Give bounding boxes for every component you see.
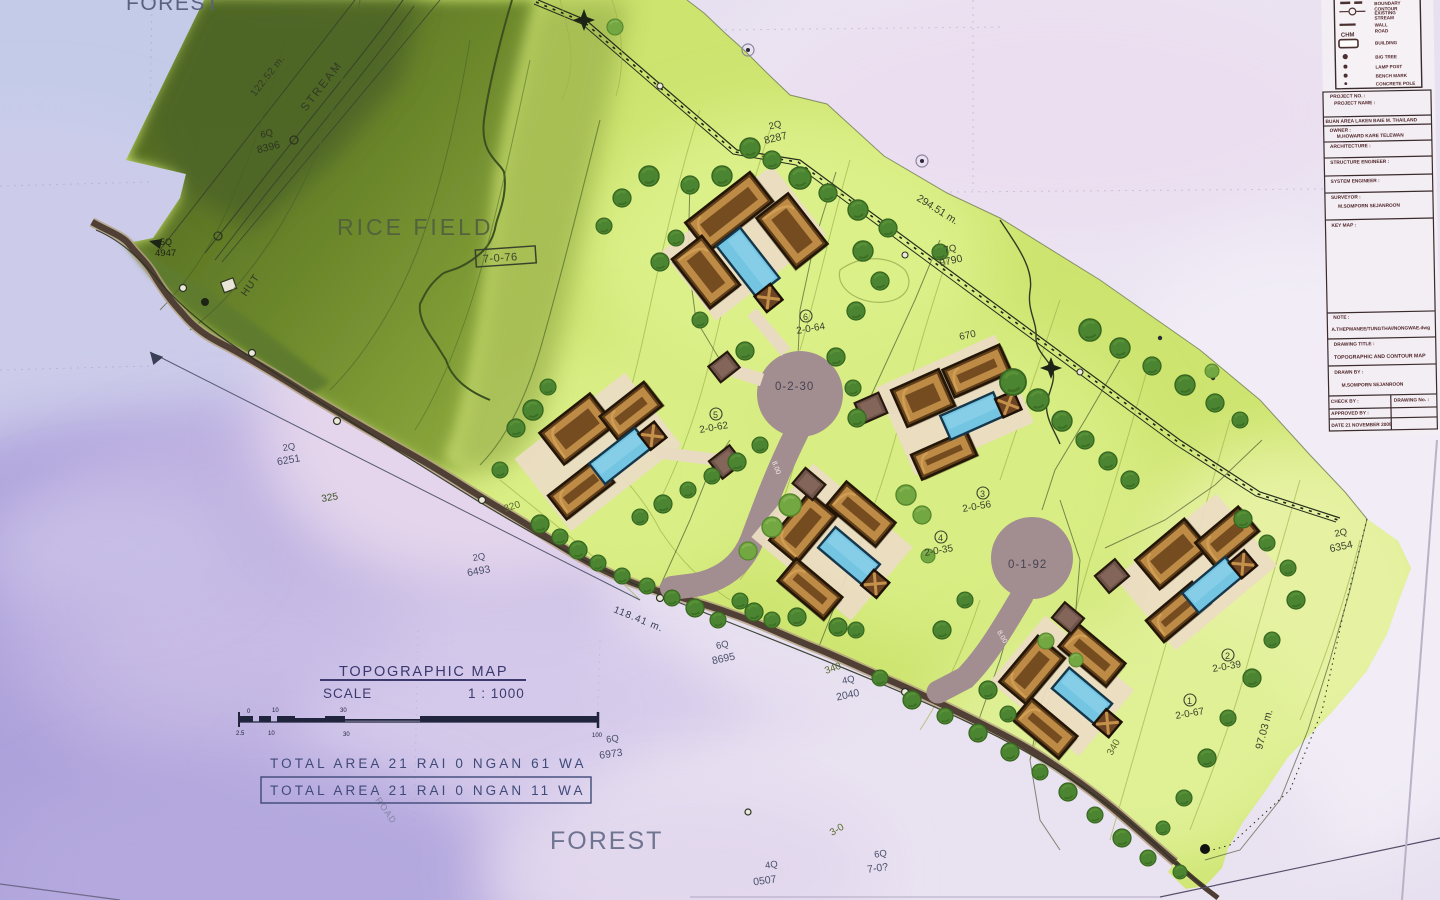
svg-text:NOTE :: NOTE : [1333, 315, 1350, 321]
svg-text:0-1-92: 0-1-92 [1008, 559, 1047, 571]
svg-text:SURVEYOR :: SURVEYOR : [1331, 194, 1361, 201]
svg-text:DRAWN BY :: DRAWN BY : [1334, 369, 1363, 376]
svg-text:BIG TREE: BIG TREE [1375, 54, 1397, 59]
svg-text:ROAD: ROAD [1375, 28, 1389, 33]
svg-text:DRAWING No. :: DRAWING No. : [1394, 397, 1430, 404]
svg-text:KEY MAP :: KEY MAP : [1331, 222, 1356, 228]
svg-text:LAMP POST: LAMP POST [1375, 64, 1402, 70]
svg-text:ARCHITECTURE :: ARCHITECTURE : [1330, 143, 1371, 150]
svg-text:DRAWING TITLE :: DRAWING TITLE : [1334, 341, 1375, 348]
svg-text:APPROVED BY :: APPROVED BY : [1331, 410, 1369, 417]
svg-text:30: 30 [340, 708, 347, 714]
svg-text:CHM: CHM [1341, 32, 1355, 38]
svg-text:TOTAL AREA 21 RAI 0 NGAN 61 WA: TOTAL AREA 21 RAI 0 NGAN 61 WA [270, 756, 587, 771]
svg-text:4947: 4947 [155, 248, 176, 259]
svg-text:M.SOMPORN SEJANROON: M.SOMPORN SEJANROON [1342, 382, 1404, 389]
svg-text:10: 10 [268, 731, 275, 737]
svg-text:PROJECT NO. :: PROJECT NO. : [1330, 93, 1366, 100]
svg-text:BUILDING: BUILDING [1375, 40, 1398, 45]
svg-text:TOTAL AREA 21 RAI 0 NGAN 11 WA: TOTAL AREA 21 RAI 0 NGAN 11 WA [270, 783, 586, 798]
svg-text:2: 2 [1225, 651, 1230, 661]
svg-text:100: 100 [592, 733, 603, 739]
svg-text:PROJECT NAME :: PROJECT NAME : [1334, 100, 1376, 107]
svg-text:2Q: 2Q [472, 551, 486, 564]
svg-text:SCALE: SCALE [323, 686, 372, 701]
svg-text:7-0-76: 7-0-76 [482, 251, 518, 265]
svg-text:M.SOMPORN SEJANROON: M.SOMPORN SEJANROON [1338, 203, 1400, 210]
svg-text:5Q: 5Q [160, 237, 172, 247]
svg-text:FOREST: FOREST [126, 0, 220, 15]
svg-text:STREAM: STREAM [1374, 15, 1394, 20]
svg-text:1 : 1000: 1 : 1000 [468, 686, 525, 701]
svg-text:1: 1 [1187, 696, 1192, 706]
svg-text:2Q: 2Q [282, 441, 296, 454]
svg-text:OWNER :: OWNER : [1330, 128, 1352, 134]
svg-text:TOPOGRAPHIC MAP: TOPOGRAPHIC MAP [339, 664, 508, 680]
svg-text:0-2-30: 0-2-30 [775, 381, 814, 393]
svg-text:CONCRETE POLE: CONCRETE POLE [1376, 81, 1416, 87]
svg-text:CHECK BY :: CHECK BY : [1331, 398, 1359, 405]
svg-text:4Q: 4Q [764, 859, 778, 872]
svg-text:5: 5 [713, 410, 718, 420]
svg-text:RICE FIELD: RICE FIELD [337, 214, 494, 240]
svg-text:WALL: WALL [1375, 22, 1388, 27]
svg-text:DATE 21 NOVEMBER 2008: DATE 21 NOVEMBER 2008 [1331, 422, 1392, 429]
svg-text:10: 10 [272, 708, 279, 714]
svg-text:6Q: 6Q [606, 733, 620, 746]
svg-text:6: 6 [803, 312, 808, 322]
svg-text:FOREST: FOREST [550, 827, 663, 855]
svg-text:4: 4 [938, 533, 943, 543]
svg-text:SYSTEM ENGINEER :: SYSTEM ENGINEER : [1331, 178, 1381, 185]
svg-text:2.5: 2.5 [236, 731, 245, 737]
svg-text:30: 30 [343, 732, 350, 738]
svg-text:STRUCTURE ENGINEER :: STRUCTURE ENGINEER : [1330, 159, 1389, 166]
svg-text:BENCH MARK: BENCH MARK [1376, 73, 1408, 79]
svg-text:3: 3 [980, 489, 985, 499]
svg-text:6Q: 6Q [874, 848, 888, 861]
